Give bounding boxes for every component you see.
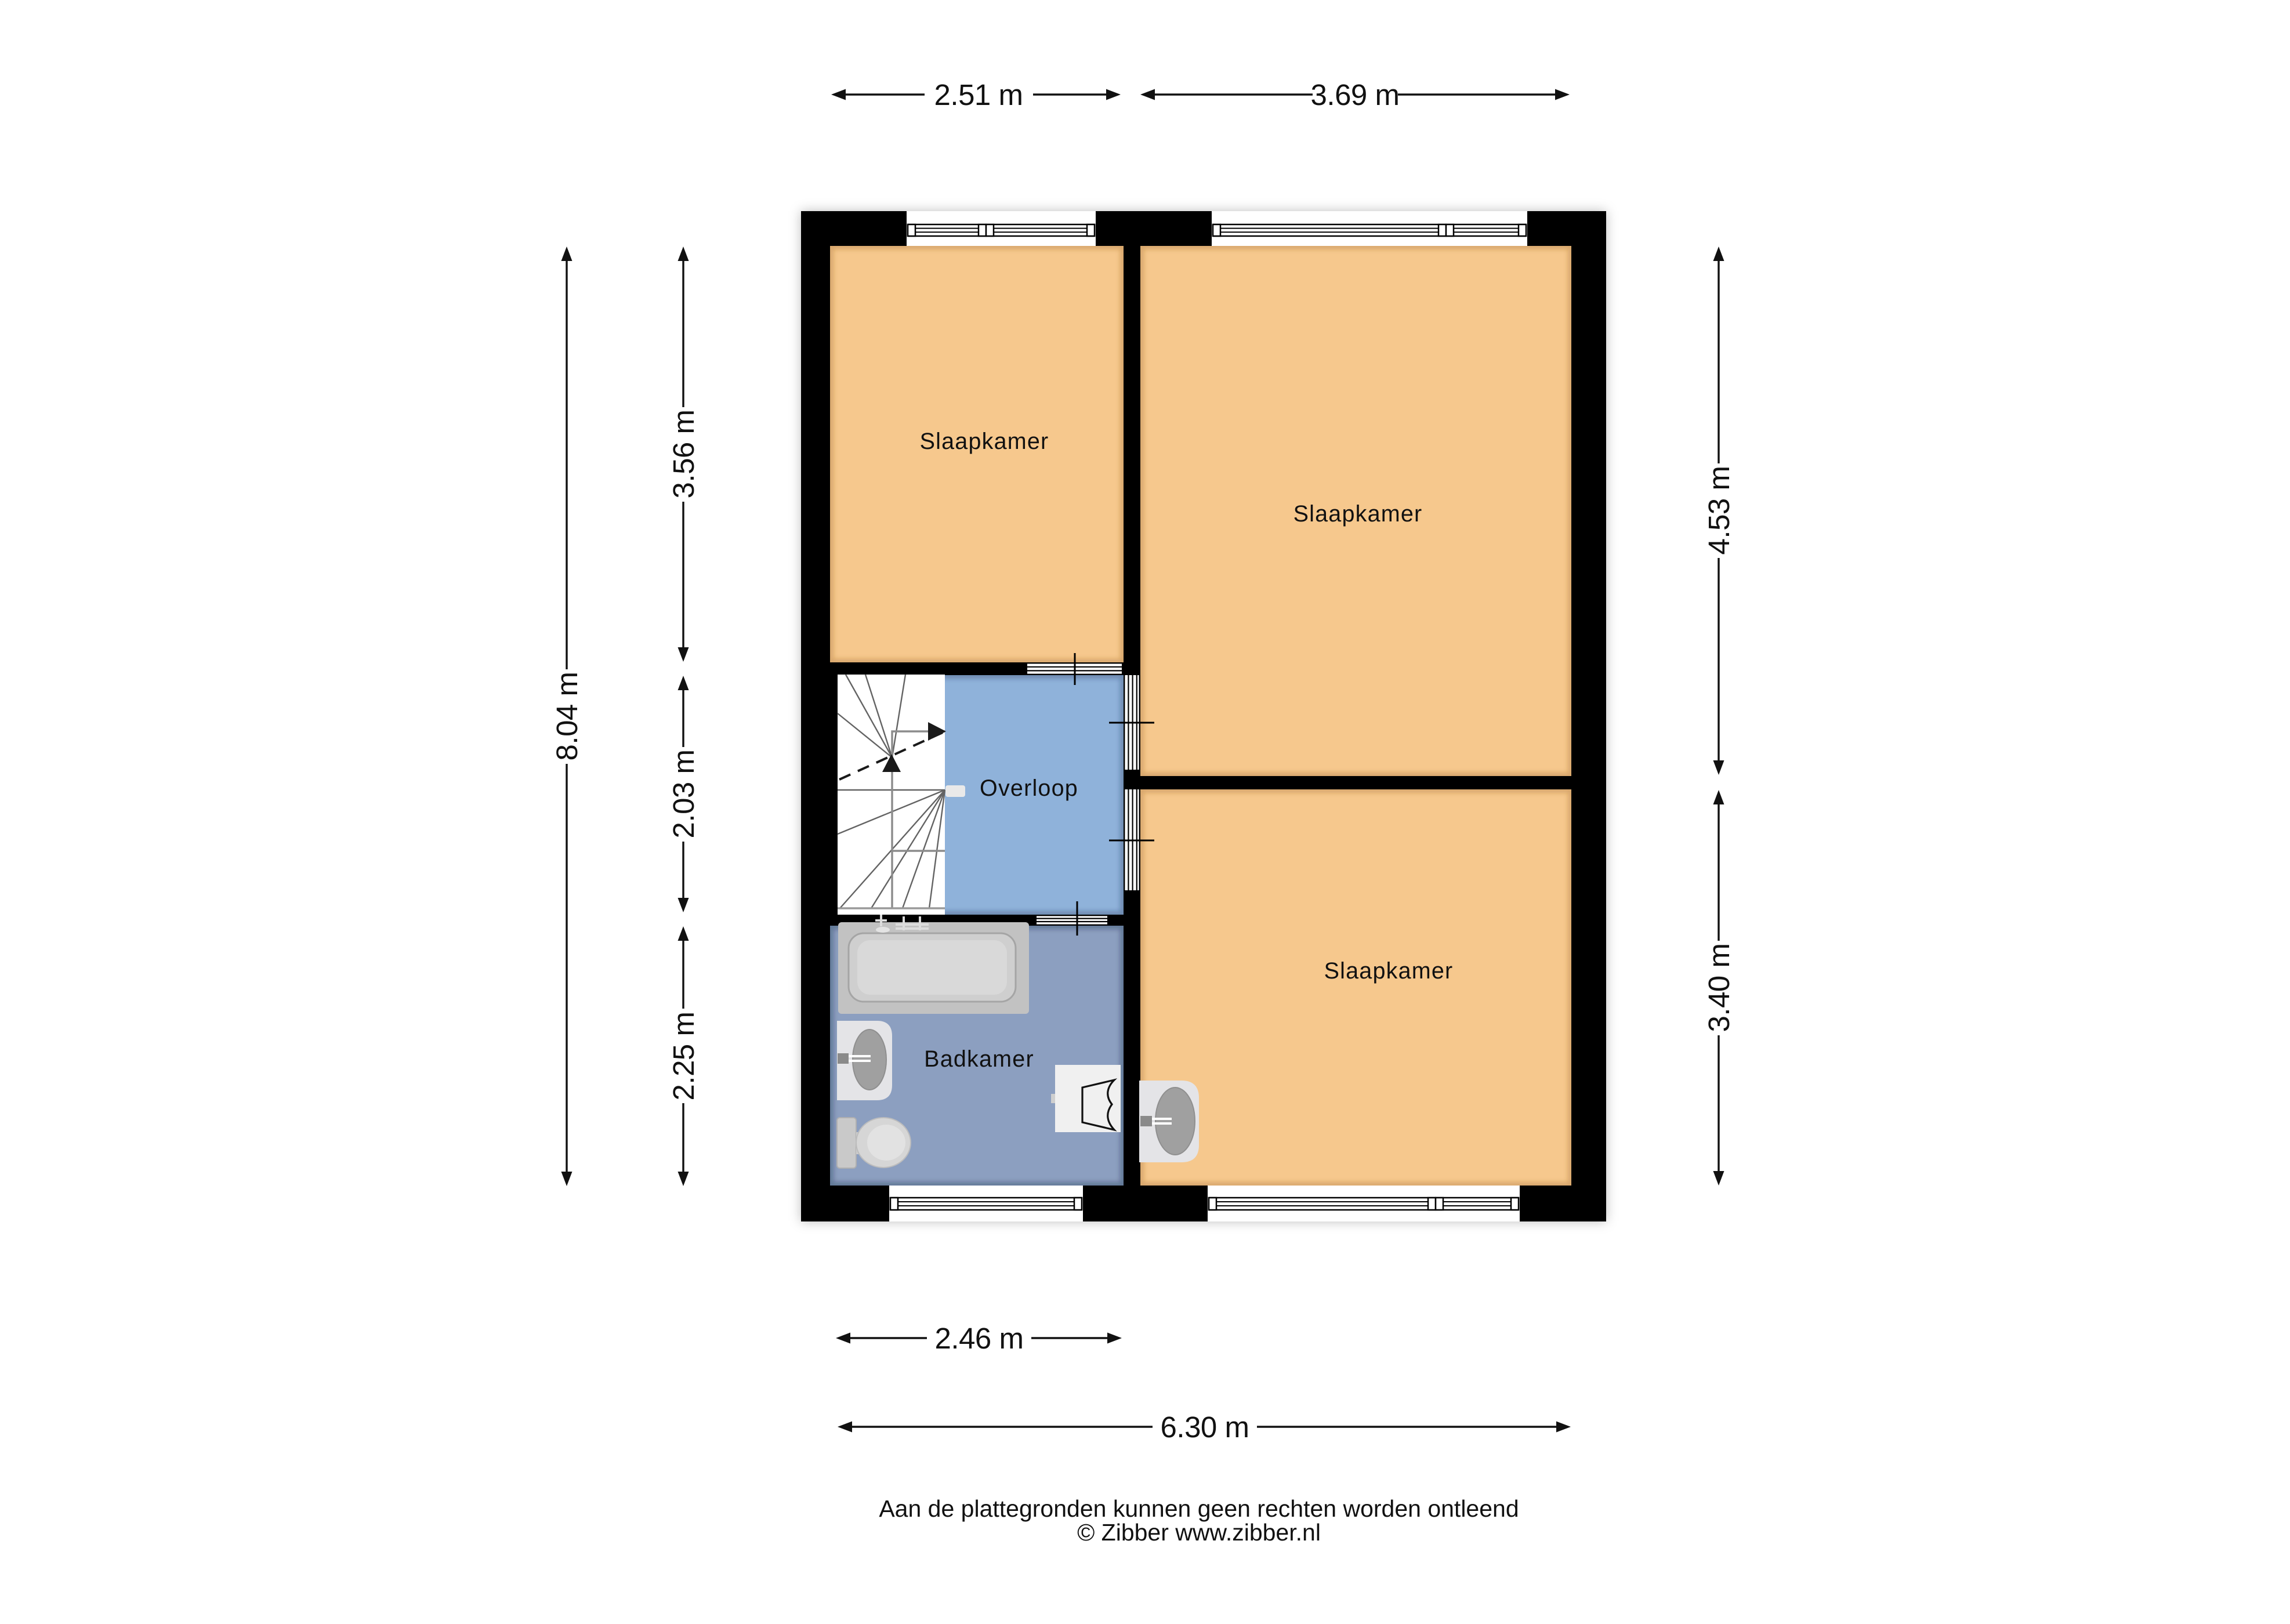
- svg-text:Slaapkamer: Slaapkamer: [1324, 958, 1454, 984]
- svg-text:6.30 m: 6.30 m: [1161, 1411, 1249, 1444]
- svg-text:Badkamer: Badkamer: [924, 1046, 1034, 1072]
- svg-text:2.51 m: 2.51 m: [934, 78, 1023, 111]
- svg-text:2.25 m: 2.25 m: [667, 1012, 700, 1101]
- svg-text:3.69 m: 3.69 m: [1311, 78, 1400, 111]
- svg-text:3.40 m: 3.40 m: [1702, 944, 1735, 1032]
- svg-text:Slaapkamer: Slaapkamer: [1293, 501, 1423, 527]
- svg-text:Slaapkamer: Slaapkamer: [920, 429, 1049, 454]
- svg-text:8.04 m: 8.04 m: [550, 672, 584, 761]
- svg-text:3.56 m: 3.56 m: [667, 410, 700, 499]
- svg-text:4.53 m: 4.53 m: [1702, 466, 1735, 555]
- svg-text:2.03 m: 2.03 m: [667, 750, 700, 839]
- svg-text:© Zibber www.zibber.nl: © Zibber www.zibber.nl: [1077, 1519, 1321, 1546]
- svg-text:2.46 m: 2.46 m: [935, 1322, 1024, 1355]
- svg-text:Overloop: Overloop: [980, 775, 1078, 801]
- svg-text:Aan de plattegronden kunnen ge: Aan de plattegronden kunnen geen rechten…: [879, 1495, 1519, 1522]
